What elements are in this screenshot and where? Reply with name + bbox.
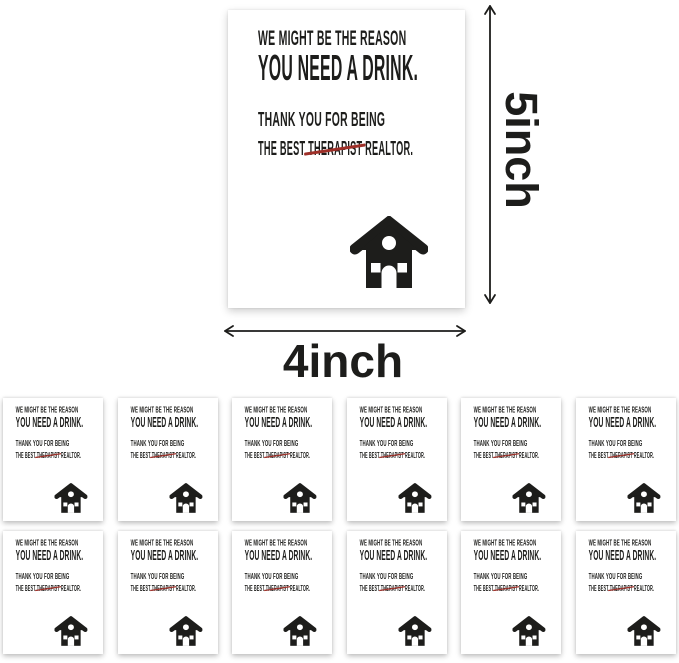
card-line-2: YOU NEED A DRINK. (474, 548, 542, 563)
greeting-card-artwork: WE MIGHT BE THE REASON YOU NEED A DRINK.… (461, 398, 561, 521)
card-line-2: YOU NEED A DRINK. (130, 415, 198, 430)
card-line-3: THANK YOU FOR BEING (245, 572, 325, 580)
card-line-4-strikethrough-word: THERAPIST (610, 584, 633, 592)
card-line-2: YOU NEED A DRINK. (16, 548, 84, 563)
greeting-card-small: WE MIGHT BE THE REASON YOU NEED A DRINK.… (3, 398, 103, 521)
card-line-2: YOU NEED A DRINK. (474, 415, 542, 430)
card-line-2: YOU NEED A DRINK. (245, 415, 313, 430)
greeting-card-artwork: WE MIGHT BE THE REASON YOU NEED A DRINK.… (576, 398, 676, 521)
card-line-4: THE BEST THERAPIST REALTOR. (474, 584, 545, 592)
card-line-4-strikethrough-word: THERAPIST (308, 139, 362, 159)
card-text: WE MIGHT BE THE REASON YOU NEED A DRINK.… (16, 538, 103, 592)
card-line-4-strikethrough-word: THERAPIST (495, 451, 518, 459)
house-icon (513, 616, 546, 647)
greeting-card-small: WE MIGHT BE THE REASON YOU NEED A DRINK.… (461, 398, 561, 521)
card-line-3: THANK YOU FOR BEING (130, 439, 210, 447)
card-line-3: THANK YOU FOR BEING (245, 439, 325, 447)
card-line-2: YOU NEED A DRINK. (258, 50, 418, 86)
card-text: WE MIGHT BE THE REASON YOU NEED A DRINK.… (589, 405, 676, 459)
card-line-4-prefix: THE BEST (474, 584, 495, 593)
greeting-card-small: WE MIGHT BE THE REASON YOU NEED A DRINK.… (461, 531, 561, 654)
card-line-4-prefix: THE BEST (474, 451, 495, 460)
card-line-4: THE BEST THERAPIST REALTOR. (130, 451, 201, 459)
card-line-4-strikethrough-word: THERAPIST (381, 451, 404, 459)
greeting-card-small: WE MIGHT BE THE REASON YOU NEED A DRINK.… (576, 531, 676, 654)
house-icon (54, 483, 87, 514)
card-text: WE MIGHT BE THE REASON YOU NEED A DRINK.… (245, 405, 332, 459)
card-line-2: YOU NEED A DRINK. (359, 548, 427, 563)
card-text: WE MIGHT BE THE REASON YOU NEED A DRINK.… (589, 538, 676, 592)
card-line-4-prefix: THE BEST (130, 584, 151, 593)
card-line-4-suffix: REALTOR. (60, 451, 81, 460)
house-icon (627, 616, 660, 647)
card-text: WE MIGHT BE THE REASON YOU NEED A DRINK.… (474, 538, 561, 592)
greeting-card-artwork: WE MIGHT BE THE REASON YOU NEED A DRINK.… (118, 398, 218, 521)
greeting-card-artwork: WE MIGHT BE THE REASON YOU NEED A DRINK.… (118, 531, 218, 654)
house-icon (284, 616, 317, 647)
card-line-4-prefix: THE BEST (245, 451, 266, 460)
greeting-card-artwork: WE MIGHT BE THE REASON YOU NEED A DRINK.… (347, 398, 447, 521)
card-line-4-prefix: THE BEST (359, 451, 380, 460)
card-line-4-prefix: THE BEST (589, 451, 610, 460)
card-line-4-prefix: THE BEST (589, 584, 610, 593)
card-line-2: YOU NEED A DRINK. (16, 415, 84, 430)
card-line-4-suffix: REALTOR. (518, 451, 539, 460)
greeting-card-small: WE MIGHT BE THE REASON YOU NEED A DRINK.… (232, 398, 332, 521)
card-line-4-suffix: REALTOR. (174, 451, 195, 460)
card-line-4: THE BEST THERAPIST REALTOR. (258, 139, 425, 159)
greeting-card-large: WE MIGHT BE THE REASON YOU NEED A DRINK.… (228, 10, 465, 308)
card-line-3: THANK YOU FOR BEING (16, 572, 96, 580)
width-label: 4inch (283, 334, 403, 388)
card-line-4: THE BEST THERAPIST REALTOR. (245, 451, 316, 459)
greeting-card-artwork: WE MIGHT BE THE REASON YOU NEED A DRINK.… (228, 10, 465, 308)
card-line-4: THE BEST THERAPIST REALTOR. (16, 451, 87, 459)
card-line-4: THE BEST THERAPIST REALTOR. (359, 584, 430, 592)
house-icon (513, 483, 546, 514)
card-line-4-suffix: REALTOR. (403, 584, 424, 593)
cards-grid: WE MIGHT BE THE REASON YOU NEED A DRINK.… (3, 398, 676, 654)
house-icon (398, 616, 431, 647)
card-line-3: THANK YOU FOR BEING (474, 439, 554, 447)
card-line-4: THE BEST THERAPIST REALTOR. (474, 451, 545, 459)
card-line-4: THE BEST THERAPIST REALTOR. (245, 584, 316, 592)
card-line-4-strikethrough-word: THERAPIST (151, 584, 174, 592)
card-line-4-suffix: REALTOR. (362, 138, 413, 160)
card-line-4-strikethrough-word: THERAPIST (381, 584, 404, 592)
height-label: 5inch (495, 91, 547, 209)
card-line-4: THE BEST THERAPIST REALTOR. (130, 584, 201, 592)
card-line-4: THE BEST THERAPIST REALTOR. (589, 584, 660, 592)
product-image: WE MIGHT BE THE REASON YOU NEED A DRINK.… (0, 0, 679, 663)
card-line-4-strikethrough-word: THERAPIST (151, 451, 174, 459)
card-line-3: THANK YOU FOR BEING (359, 572, 439, 580)
card-text: WE MIGHT BE THE REASON YOU NEED A DRINK.… (258, 28, 622, 159)
greeting-card-artwork: WE MIGHT BE THE REASON YOU NEED A DRINK.… (347, 531, 447, 654)
card-line-4-suffix: REALTOR. (60, 584, 81, 593)
greeting-card-small: WE MIGHT BE THE REASON YOU NEED A DRINK.… (118, 531, 218, 654)
card-line-4: THE BEST THERAPIST REALTOR. (359, 451, 430, 459)
card-line-4-strikethrough-word: THERAPIST (37, 451, 60, 459)
card-text: WE MIGHT BE THE REASON YOU NEED A DRINK.… (359, 405, 446, 459)
card-line-3: THANK YOU FOR BEING (589, 439, 669, 447)
greeting-card-artwork: WE MIGHT BE THE REASON YOU NEED A DRINK.… (3, 398, 103, 521)
card-line-4-suffix: REALTOR. (518, 584, 539, 593)
house-icon (627, 483, 660, 514)
card-line-4-prefix: THE BEST (258, 138, 308, 160)
card-line-3: THANK YOU FOR BEING (258, 110, 447, 130)
card-text: WE MIGHT BE THE REASON YOU NEED A DRINK.… (130, 405, 217, 459)
card-line-2: YOU NEED A DRINK. (589, 548, 657, 563)
card-line-3: THANK YOU FOR BEING (130, 572, 210, 580)
card-line-4: THE BEST THERAPIST REALTOR. (16, 584, 87, 592)
card-line-4-strikethrough-word: THERAPIST (495, 584, 518, 592)
card-text: WE MIGHT BE THE REASON YOU NEED A DRINK.… (359, 538, 446, 592)
card-line-4: THE BEST THERAPIST REALTOR. (589, 451, 660, 459)
card-line-4-strikethrough-word: THERAPIST (266, 451, 289, 459)
card-line-2: YOU NEED A DRINK. (245, 548, 313, 563)
card-line-4-suffix: REALTOR. (403, 451, 424, 460)
greeting-card-artwork: WE MIGHT BE THE REASON YOU NEED A DRINK.… (576, 531, 676, 654)
card-text: WE MIGHT BE THE REASON YOU NEED A DRINK.… (245, 538, 332, 592)
greeting-card-small: WE MIGHT BE THE REASON YOU NEED A DRINK.… (118, 398, 218, 521)
greeting-card-small: WE MIGHT BE THE REASON YOU NEED A DRINK.… (576, 398, 676, 521)
card-line-3: THANK YOU FOR BEING (474, 572, 554, 580)
card-line-4-strikethrough-word: THERAPIST (266, 584, 289, 592)
card-text: WE MIGHT BE THE REASON YOU NEED A DRINK.… (16, 405, 103, 459)
card-line-2: YOU NEED A DRINK. (130, 548, 198, 563)
card-line-4-prefix: THE BEST (359, 584, 380, 593)
card-line-4-suffix: REALTOR. (633, 584, 654, 593)
card-line-2: YOU NEED A DRINK. (589, 415, 657, 430)
greeting-card-small: WE MIGHT BE THE REASON YOU NEED A DRINK.… (232, 531, 332, 654)
card-line-4-strikethrough-word: THERAPIST (610, 451, 633, 459)
card-line-3: THANK YOU FOR BEING (589, 572, 669, 580)
card-line-4-prefix: THE BEST (16, 584, 37, 593)
card-line-4-prefix: THE BEST (245, 584, 266, 593)
house-icon (398, 483, 431, 514)
card-line-4-suffix: REALTOR. (633, 451, 654, 460)
card-line-3: THANK YOU FOR BEING (359, 439, 439, 447)
house-icon (169, 616, 202, 647)
card-text: WE MIGHT BE THE REASON YOU NEED A DRINK.… (474, 405, 561, 459)
greeting-card-artwork: WE MIGHT BE THE REASON YOU NEED A DRINK.… (3, 531, 103, 654)
house-icon (54, 616, 87, 647)
greeting-card-small: WE MIGHT BE THE REASON YOU NEED A DRINK.… (347, 531, 447, 654)
house-icon (284, 483, 317, 514)
greeting-card-small: WE MIGHT BE THE REASON YOU NEED A DRINK.… (347, 398, 447, 521)
card-line-4-strikethrough-word: THERAPIST (37, 584, 60, 592)
greeting-card-artwork: WE MIGHT BE THE REASON YOU NEED A DRINK.… (461, 531, 561, 654)
card-line-3: THANK YOU FOR BEING (16, 439, 96, 447)
greeting-card-small: WE MIGHT BE THE REASON YOU NEED A DRINK.… (3, 531, 103, 654)
card-line-4-suffix: REALTOR. (174, 584, 195, 593)
card-line-4-prefix: THE BEST (16, 451, 37, 460)
greeting-card-artwork: WE MIGHT BE THE REASON YOU NEED A DRINK.… (232, 531, 332, 654)
card-line-4-suffix: REALTOR. (289, 584, 310, 593)
card-text: WE MIGHT BE THE REASON YOU NEED A DRINK.… (130, 538, 217, 592)
card-line-2: YOU NEED A DRINK. (359, 415, 427, 430)
greeting-card-artwork: WE MIGHT BE THE REASON YOU NEED A DRINK.… (232, 398, 332, 521)
card-line-4-prefix: THE BEST (130, 451, 151, 460)
house-icon (350, 216, 428, 290)
house-icon (169, 483, 202, 514)
card-line-4-suffix: REALTOR. (289, 451, 310, 460)
